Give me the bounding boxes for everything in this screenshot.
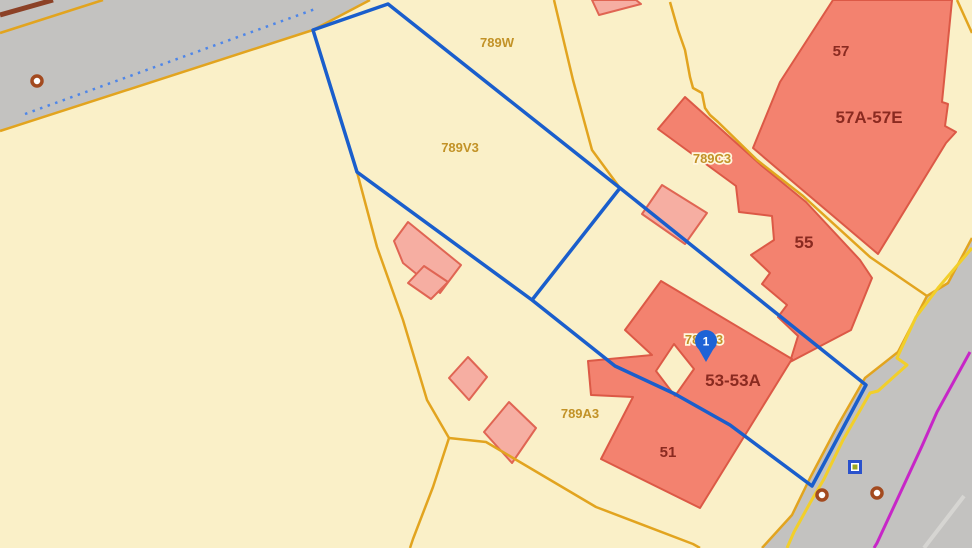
- building-label-55: 55: [795, 233, 814, 252]
- survey-marker-ring-1[interactable]: [32, 76, 42, 86]
- parcel-label-789c3: 789C3: [693, 151, 731, 166]
- map-canvas[interactable]: 789W789V3789C3789B3789A35757A-57E5553-53…: [0, 0, 972, 548]
- building-label-57a-57e: 57A-57E: [835, 108, 902, 127]
- parcel-label-789w: 789W: [480, 35, 515, 50]
- building-label-51: 51: [660, 444, 677, 461]
- survey-marker-square[interactable]: [848, 460, 862, 474]
- parcel-label-789a3: 789A3: [561, 406, 599, 421]
- survey-marker-ring-3[interactable]: [872, 488, 882, 498]
- parcel-label-789v3: 789V3: [441, 140, 479, 155]
- survey-marker-ring-2[interactable]: [817, 490, 827, 500]
- survey-marker-square-inner: [853, 465, 858, 470]
- building-label-57: 57: [833, 43, 850, 60]
- building-label-53-53a: 53-53A: [705, 371, 761, 390]
- map-pin-number: 1: [703, 335, 710, 349]
